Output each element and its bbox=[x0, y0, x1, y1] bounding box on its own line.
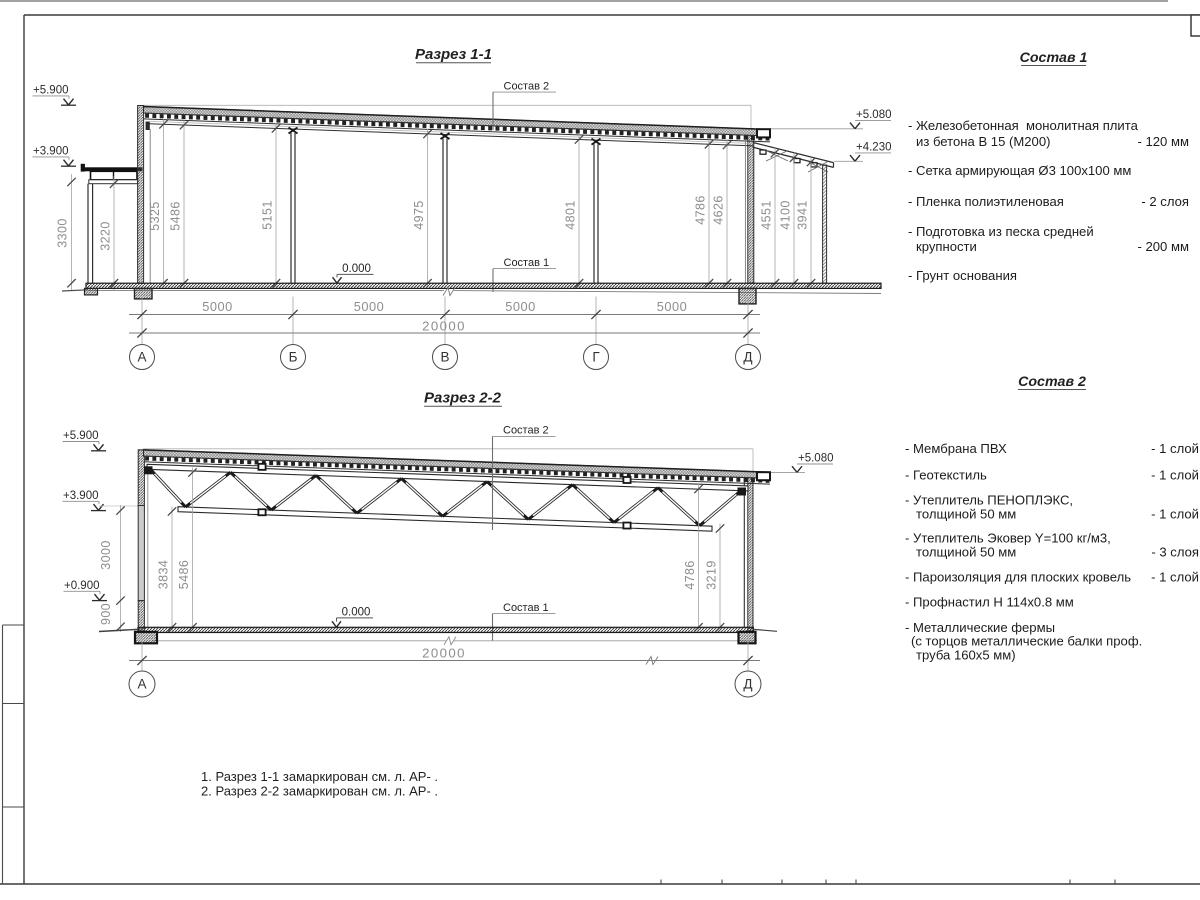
svg-text:4975: 4975 bbox=[412, 200, 426, 229]
svg-text:- Пароизоляция для плоских кро: - Пароизоляция для плоских кровель bbox=[905, 570, 1131, 585]
svg-text:3834: 3834 bbox=[157, 560, 171, 589]
svg-text:- Сетка армирующая Ø3 100х100: - Сетка армирующая Ø3 100х100 мм bbox=[908, 163, 1131, 178]
svg-text:900: 900 bbox=[99, 603, 113, 625]
svg-text:20000: 20000 bbox=[422, 319, 466, 334]
svg-text:4801: 4801 bbox=[564, 200, 578, 229]
svg-text:- Утеплитель ПЕНОПЛЭКС,: - Утеплитель ПЕНОПЛЭКС, bbox=[905, 493, 1073, 508]
svg-text:5325: 5325 bbox=[148, 201, 162, 230]
svg-text:3300: 3300 bbox=[56, 218, 70, 247]
svg-text:5151: 5151 bbox=[261, 200, 275, 229]
svg-text:+0.900: +0.900 bbox=[64, 580, 100, 592]
svg-text:4100: 4100 bbox=[779, 200, 793, 229]
svg-text:- Подготовка из песка средней: - Подготовка из песка средней bbox=[908, 224, 1094, 239]
svg-text:А: А bbox=[137, 350, 146, 365]
svg-text:5486: 5486 bbox=[169, 201, 183, 230]
svg-text:- Пленка полиэтиленовая: - Пленка полиэтиленовая bbox=[908, 194, 1064, 209]
svg-text:20000: 20000 bbox=[422, 646, 466, 661]
svg-text:- Утеплитель Эковер Y=100 кг/м: - Утеплитель Эковер Y=100 кг/м3, bbox=[905, 531, 1111, 546]
svg-text:Состав 1: Состав 1 bbox=[503, 602, 549, 614]
svg-text:А: А bbox=[137, 677, 146, 692]
svg-text:0.000: 0.000 bbox=[342, 606, 371, 618]
svg-text:- Железобетонная монолитная п: - Железобетонная монолитная плита bbox=[908, 118, 1139, 133]
svg-text:3219: 3219 bbox=[705, 560, 719, 589]
svg-text:Разрез 2-2: Разрез 2-2 bbox=[424, 390, 502, 407]
svg-text:+3.900: +3.900 bbox=[33, 146, 69, 158]
svg-text:2. Разрез 2-2 замаркирован см.: 2. Разрез 2-2 замаркирован см. л. АР- . bbox=[201, 784, 438, 799]
svg-text:- 1 слой: - 1 слой bbox=[1151, 507, 1199, 522]
svg-text:5000: 5000 bbox=[354, 299, 384, 314]
svg-text:+5.900: +5.900 bbox=[33, 85, 69, 97]
svg-text:Состав 1: Состав 1 bbox=[1020, 50, 1088, 66]
svg-text:толщиной 50 мм: толщиной 50 мм bbox=[916, 507, 1016, 522]
svg-text:из бетона В 15 (М200): из бетона В 15 (М200) bbox=[916, 134, 1051, 149]
svg-text:5000: 5000 bbox=[202, 299, 232, 314]
svg-text:+5.080: +5.080 bbox=[856, 109, 892, 121]
svg-text:- 1 слой: - 1 слой bbox=[1151, 570, 1199, 585]
svg-text:толщиной 50 мм: толщиной 50 мм bbox=[916, 545, 1016, 560]
svg-text:Состав 2: Состав 2 bbox=[504, 80, 550, 92]
svg-text:- 1 слой: - 1 слой bbox=[1151, 468, 1199, 483]
svg-text:Разрез 1-1: Разрез 1-1 bbox=[415, 46, 492, 63]
svg-text:Г: Г bbox=[592, 350, 600, 365]
svg-text:4626: 4626 bbox=[712, 195, 726, 224]
svg-text:+5.900: +5.900 bbox=[63, 430, 99, 442]
svg-text:- 3 слоя: - 3 слоя bbox=[1151, 545, 1199, 560]
svg-text:5486: 5486 bbox=[177, 560, 191, 589]
svg-text:- Грунт основания: - Грунт основания bbox=[908, 268, 1017, 283]
svg-text:Состав 2: Состав 2 bbox=[1018, 374, 1086, 390]
svg-text:4786: 4786 bbox=[694, 195, 708, 224]
svg-text:- 200 мм: - 200 мм bbox=[1138, 239, 1190, 254]
svg-text:- Мембрана ПВХ: - Мембрана ПВХ bbox=[905, 441, 1007, 456]
svg-text:- 2 слоя: - 2 слоя bbox=[1141, 194, 1189, 209]
svg-text:Д: Д bbox=[743, 677, 752, 692]
svg-text:- 120 мм: - 120 мм bbox=[1138, 134, 1190, 149]
svg-text:- Геотекстиль: - Геотекстиль bbox=[905, 468, 987, 483]
svg-text:4551: 4551 bbox=[760, 200, 774, 229]
svg-text:Состав 2: Состав 2 bbox=[503, 425, 549, 437]
svg-text:5000: 5000 bbox=[657, 299, 687, 314]
svg-text:3220: 3220 bbox=[99, 221, 113, 250]
svg-text:+4.230: +4.230 bbox=[856, 141, 892, 153]
svg-text:Д: Д bbox=[743, 350, 752, 365]
svg-text:труба 160х5 мм): труба 160х5 мм) bbox=[916, 648, 1016, 663]
svg-text:+5.080: +5.080 bbox=[798, 452, 834, 464]
svg-text:3000: 3000 bbox=[99, 540, 113, 569]
svg-text:- Профнастил Н 114х0.8 мм: - Профнастил Н 114х0.8 мм bbox=[905, 595, 1074, 610]
svg-text:0.000: 0.000 bbox=[342, 263, 371, 275]
svg-text:4786: 4786 bbox=[683, 560, 697, 589]
svg-text:В: В bbox=[440, 350, 449, 365]
svg-text:Состав 1: Состав 1 bbox=[504, 257, 550, 269]
svg-text:(с торцов металлические балки: (с торцов металлические балки проф. bbox=[911, 634, 1142, 649]
svg-text:5000: 5000 bbox=[505, 299, 535, 314]
svg-text:- 1 слой: - 1 слой bbox=[1151, 441, 1199, 456]
svg-text:Б: Б bbox=[289, 350, 298, 365]
svg-text:+3.900: +3.900 bbox=[63, 490, 99, 502]
svg-text:3941: 3941 bbox=[796, 200, 810, 229]
svg-text:1. Разрез 1-1 замаркирован см.: 1. Разрез 1-1 замаркирован см. л. АР- . bbox=[201, 769, 438, 784]
svg-text:крупности: крупности bbox=[916, 239, 977, 254]
